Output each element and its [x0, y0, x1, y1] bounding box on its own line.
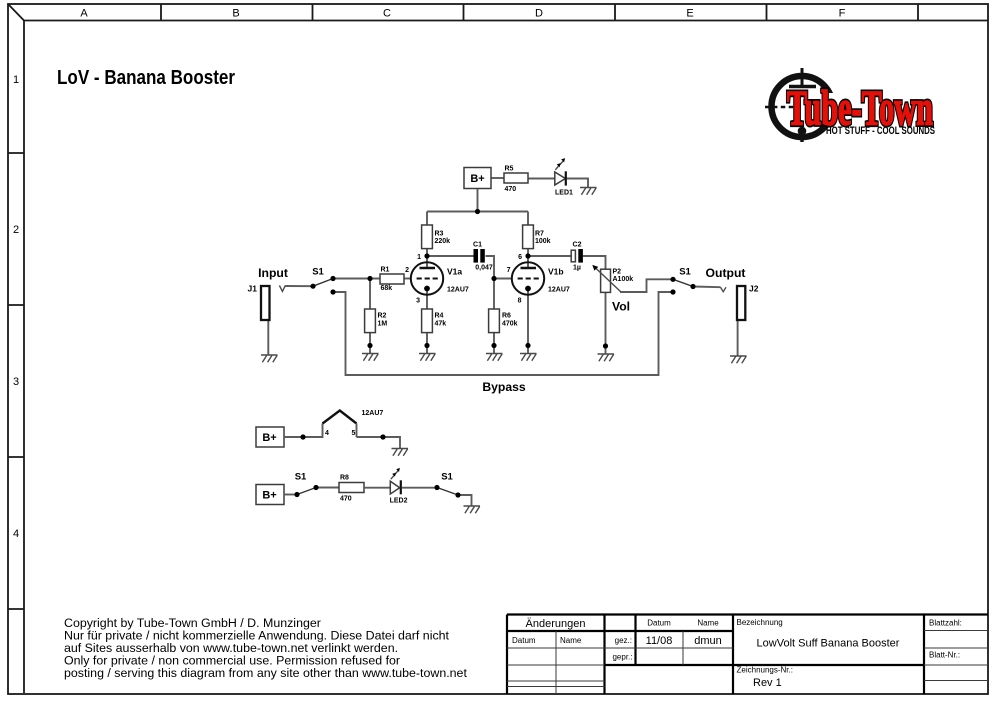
- svg-text:S1: S1: [295, 472, 307, 483]
- svg-text:gez.:: gez.:: [615, 636, 632, 645]
- svg-text:8: 8: [518, 298, 522, 305]
- svg-text:2: 2: [13, 224, 19, 236]
- svg-text:J2: J2: [749, 284, 759, 294]
- svg-text:470: 470: [340, 496, 352, 503]
- svg-text:220k: 220k: [435, 238, 451, 245]
- svg-text:C1: C1: [473, 242, 482, 249]
- svg-text:S1: S1: [312, 267, 324, 278]
- svg-text:4: 4: [325, 430, 329, 437]
- svg-text:1: 1: [417, 254, 421, 261]
- svg-text:Blatt-Nr.:: Blatt-Nr.:: [929, 651, 960, 660]
- svg-text:0,047: 0,047: [475, 265, 493, 272]
- svg-text:12AU7: 12AU7: [447, 287, 469, 294]
- svg-text:R8: R8: [340, 475, 349, 482]
- svg-text:Name: Name: [697, 619, 719, 628]
- svg-text:J1: J1: [248, 284, 258, 294]
- svg-text:1: 1: [13, 74, 19, 86]
- svg-text:B+: B+: [262, 432, 276, 444]
- svg-text:Bezeichnung: Bezeichnung: [737, 618, 783, 627]
- svg-text:7: 7: [507, 267, 511, 274]
- svg-text:R1: R1: [381, 267, 390, 274]
- svg-text:Bypass: Bypass: [482, 380, 526, 394]
- svg-text:3: 3: [416, 298, 420, 305]
- svg-text:B+: B+: [262, 490, 276, 502]
- svg-text:6: 6: [518, 254, 522, 261]
- svg-text:S1: S1: [679, 267, 691, 278]
- svg-text:Blattzahl:: Blattzahl:: [929, 619, 962, 628]
- svg-text:LED1: LED1: [555, 190, 573, 197]
- svg-text:A: A: [80, 8, 88, 20]
- svg-text:47k: 47k: [435, 321, 447, 328]
- svg-text:4: 4: [13, 528, 19, 540]
- svg-text:A100k: A100k: [613, 276, 634, 283]
- svg-text:1M: 1M: [378, 321, 388, 328]
- svg-text:LoV - Banana Booster: LoV - Banana Booster: [57, 66, 235, 89]
- svg-text:R2: R2: [378, 313, 387, 320]
- svg-text:Rev 1: Rev 1: [753, 677, 782, 689]
- svg-text:12AU7: 12AU7: [548, 287, 570, 294]
- svg-text:F: F: [839, 8, 846, 20]
- svg-text:Vol: Vol: [612, 300, 630, 314]
- svg-text:B+: B+: [470, 173, 484, 185]
- svg-text:Datum: Datum: [647, 619, 671, 628]
- svg-text:100k: 100k: [535, 238, 551, 245]
- svg-text:S1: S1: [441, 472, 453, 483]
- svg-text:5: 5: [352, 430, 356, 437]
- svg-text:Name: Name: [560, 636, 582, 645]
- svg-text:68k: 68k: [381, 285, 393, 292]
- svg-text:Zeichnungs-Nr.:: Zeichnungs-Nr.:: [737, 666, 793, 675]
- svg-text:HOT STUFF - COOL SOUNDS: HOT STUFF - COOL SOUNDS: [826, 125, 935, 137]
- svg-text:12AU7: 12AU7: [362, 410, 384, 417]
- svg-text:11/08: 11/08: [646, 635, 673, 647]
- svg-text:posting / serving this diagram: posting / serving this diagram from any …: [64, 666, 467, 680]
- svg-text:R5: R5: [505, 166, 514, 173]
- svg-text:LowVolt Suff Banana Booster: LowVolt Suff Banana Booster: [757, 638, 900, 650]
- svg-text:R7: R7: [535, 231, 544, 238]
- svg-text:V1b: V1b: [548, 267, 564, 277]
- svg-text:470: 470: [505, 186, 517, 193]
- svg-text:470k: 470k: [502, 321, 518, 328]
- svg-text:R4: R4: [435, 313, 444, 320]
- svg-text:dmun: dmun: [694, 635, 722, 647]
- svg-text:3: 3: [13, 376, 19, 388]
- svg-text:C2: C2: [573, 242, 582, 249]
- svg-text:2: 2: [405, 267, 409, 274]
- svg-text:Änderungen: Änderungen: [526, 618, 586, 630]
- svg-text:R3: R3: [435, 231, 444, 238]
- svg-text:Datum: Datum: [512, 636, 536, 645]
- svg-text:P2: P2: [613, 269, 622, 276]
- svg-text:1µ: 1µ: [573, 265, 581, 272]
- svg-text:E: E: [686, 8, 693, 20]
- svg-text:Input: Input: [258, 266, 288, 280]
- svg-text:D: D: [535, 8, 543, 20]
- svg-text:B: B: [232, 8, 239, 20]
- svg-text:C: C: [383, 8, 391, 20]
- svg-text:LED2: LED2: [390, 498, 408, 505]
- svg-text:Output: Output: [706, 266, 746, 280]
- svg-text:V1a: V1a: [447, 267, 462, 277]
- svg-text:gepr.:: gepr.:: [612, 653, 632, 662]
- svg-text:R6: R6: [502, 313, 511, 320]
